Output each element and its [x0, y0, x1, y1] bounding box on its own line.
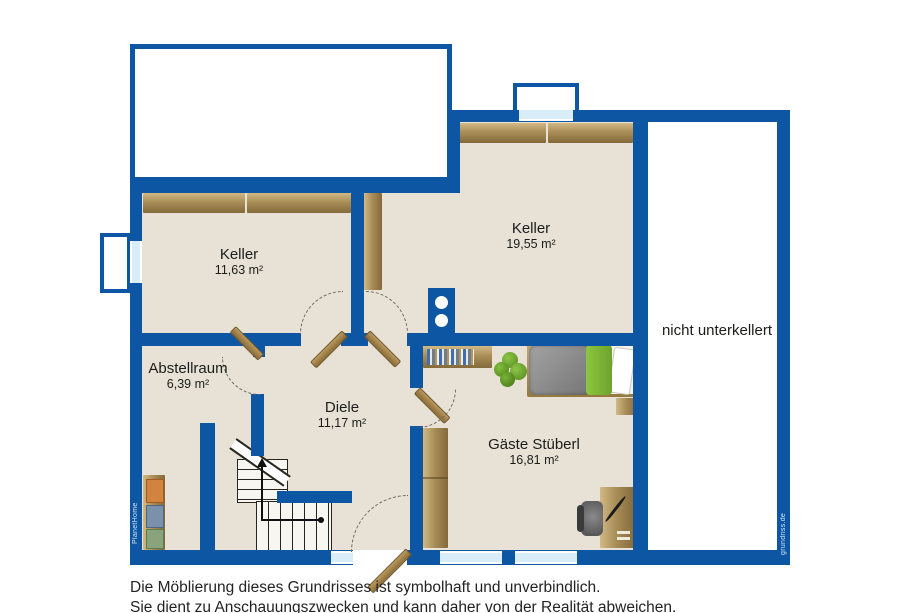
room-label-abstellraum: Abstellraum 6,39 m² — [113, 361, 263, 392]
wall-stairs-top — [277, 491, 352, 503]
room-label-keller1: Keller 11,63 m² — [164, 247, 314, 278]
wall-gaeste-divider-top — [410, 345, 423, 388]
label-nicht-unterkellert: nicht unterkellert — [642, 323, 792, 339]
wall-mid-right — [407, 333, 648, 346]
plant-icon — [494, 350, 528, 388]
disclaimer-text: Die Möblierung dieses Grundrisses ist sy… — [130, 578, 676, 613]
room-label-keller2: Keller 19,55 m² — [456, 221, 606, 252]
shelf-keller2-left — [459, 123, 546, 143]
shelf-keller2-right — [548, 123, 633, 143]
wall-mid-left — [130, 333, 301, 346]
stairs-lower-flight — [256, 501, 332, 553]
chimney-flue-2 — [435, 314, 448, 327]
window-top-glass — [519, 108, 573, 121]
shelf-keller1-left — [143, 193, 245, 213]
wall-keller-divider — [351, 190, 364, 335]
watermark-grundriss-de: grundriss.de — [777, 504, 790, 564]
wall-bottom-left — [130, 550, 353, 565]
wall-connector — [448, 110, 460, 193]
books-icon — [427, 349, 474, 365]
shelf-keller2-side — [364, 193, 382, 290]
window-left-glass — [130, 241, 142, 283]
room-area: 11,17 m² — [267, 416, 417, 431]
floor-plan: Keller 11,63 m² Keller 19,55 m² Abstellr… — [0, 0, 920, 613]
room-name: Abstellraum — [113, 361, 263, 377]
wall-stairwell — [200, 423, 215, 553]
watermark-planethome: PlanetHome — [129, 492, 142, 554]
disclaimer-line-2: Sie dient zu Anschauungszwecken und kann… — [130, 598, 676, 613]
shelf-keller1-right — [247, 193, 351, 213]
storage-shelf-icon — [143, 475, 165, 550]
room-area: 16,81 m² — [459, 453, 609, 468]
wall-top-left-section — [130, 180, 460, 193]
room-label-gaeste-stueberl: Gäste Stüberl 16,81 m² — [459, 437, 609, 468]
chair-icon — [577, 501, 603, 536]
room-name: Diele — [267, 400, 417, 416]
room-area: 11,63 m² — [164, 263, 314, 278]
room-area: 19,55 m² — [456, 237, 606, 252]
room-name: Gäste Stüberl — [459, 437, 609, 453]
room-name: Keller — [456, 221, 606, 237]
window-gaeste-2 — [515, 551, 577, 564]
window-diele — [331, 551, 353, 564]
room-name: Keller — [164, 247, 314, 263]
disclaimer-line-1: Die Möblierung dieses Grundrisses ist sy… — [130, 578, 676, 598]
chimney-flue-1 — [435, 296, 448, 309]
desk-icon — [600, 487, 635, 548]
wall-gaeste-divider-bottom — [410, 426, 423, 553]
wardrobe-icon — [423, 428, 448, 548]
unlabeled-area-outline — [130, 44, 452, 182]
room-area: 6,39 m² — [113, 377, 263, 392]
window-gaeste-1 — [440, 551, 502, 564]
wall-abstellraum-stub-bottom — [251, 394, 264, 456]
window-left-box — [100, 233, 131, 293]
bed-icon — [527, 343, 637, 397]
wall-top-right-section — [448, 110, 790, 122]
room-label-diele: Diele 11,17 m² — [267, 400, 417, 431]
